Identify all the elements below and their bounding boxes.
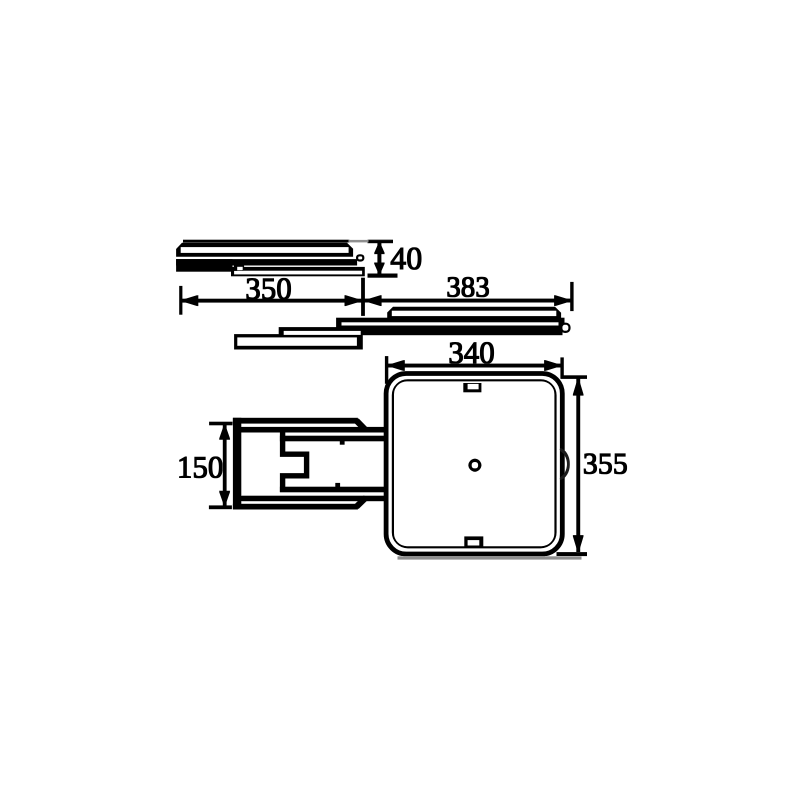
svg-text:355: 355 (583, 447, 628, 480)
svg-text:40: 40 (390, 240, 422, 276)
svg-text:383: 383 (446, 272, 490, 304)
svg-text:150: 150 (177, 449, 224, 484)
svg-text:350: 350 (245, 271, 291, 306)
svg-text:340: 340 (448, 335, 495, 370)
